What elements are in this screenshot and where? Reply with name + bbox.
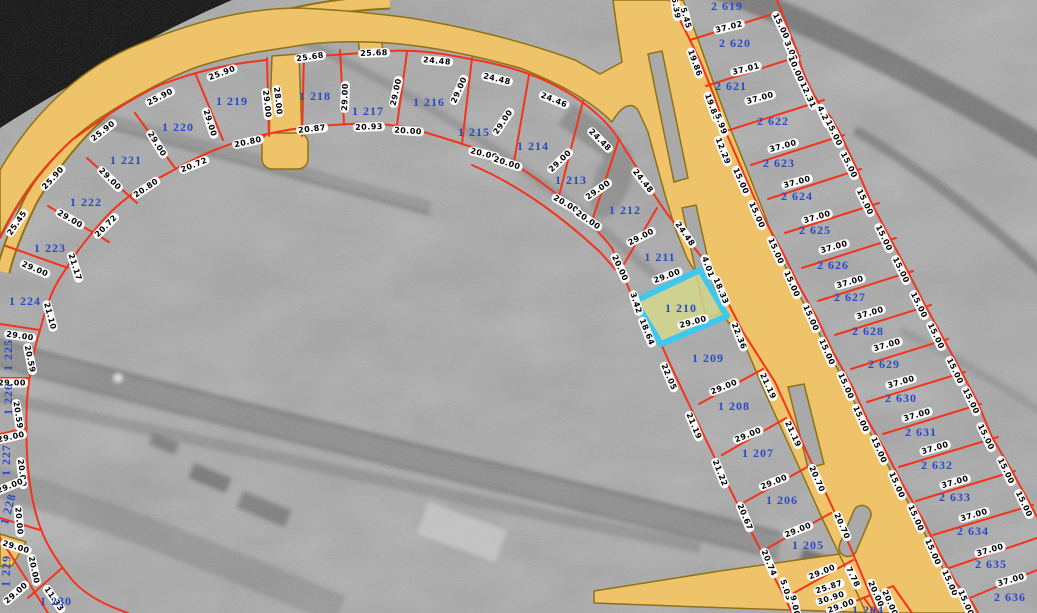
cul-de-sac-stub-road: [269, 54, 302, 138]
map-graphics-layer: [0, 0, 1037, 613]
cul-de-sac-bulb: [262, 133, 308, 169]
map-canvas[interactable]: 25.9025.9025.9025.9025.4525.6825.6824.48…: [0, 0, 1037, 613]
